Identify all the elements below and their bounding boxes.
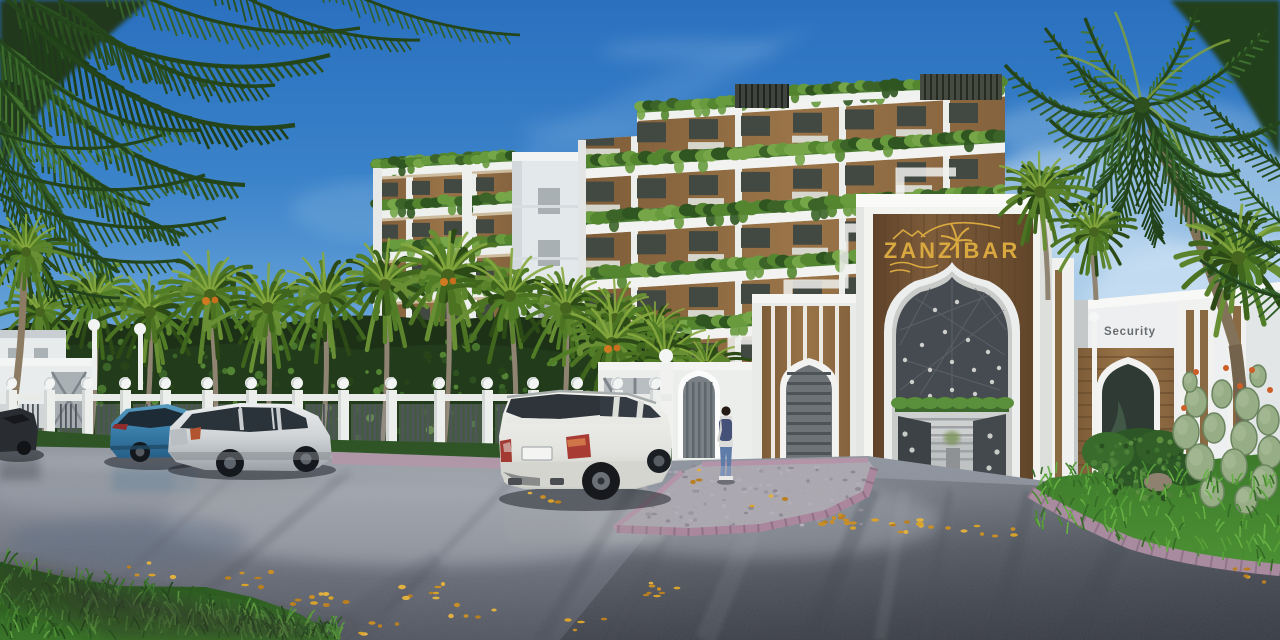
svg-text:ZANZIBAR: ZANZIBAR bbox=[884, 238, 1020, 263]
svg-text:Security: Security bbox=[1104, 326, 1156, 338]
